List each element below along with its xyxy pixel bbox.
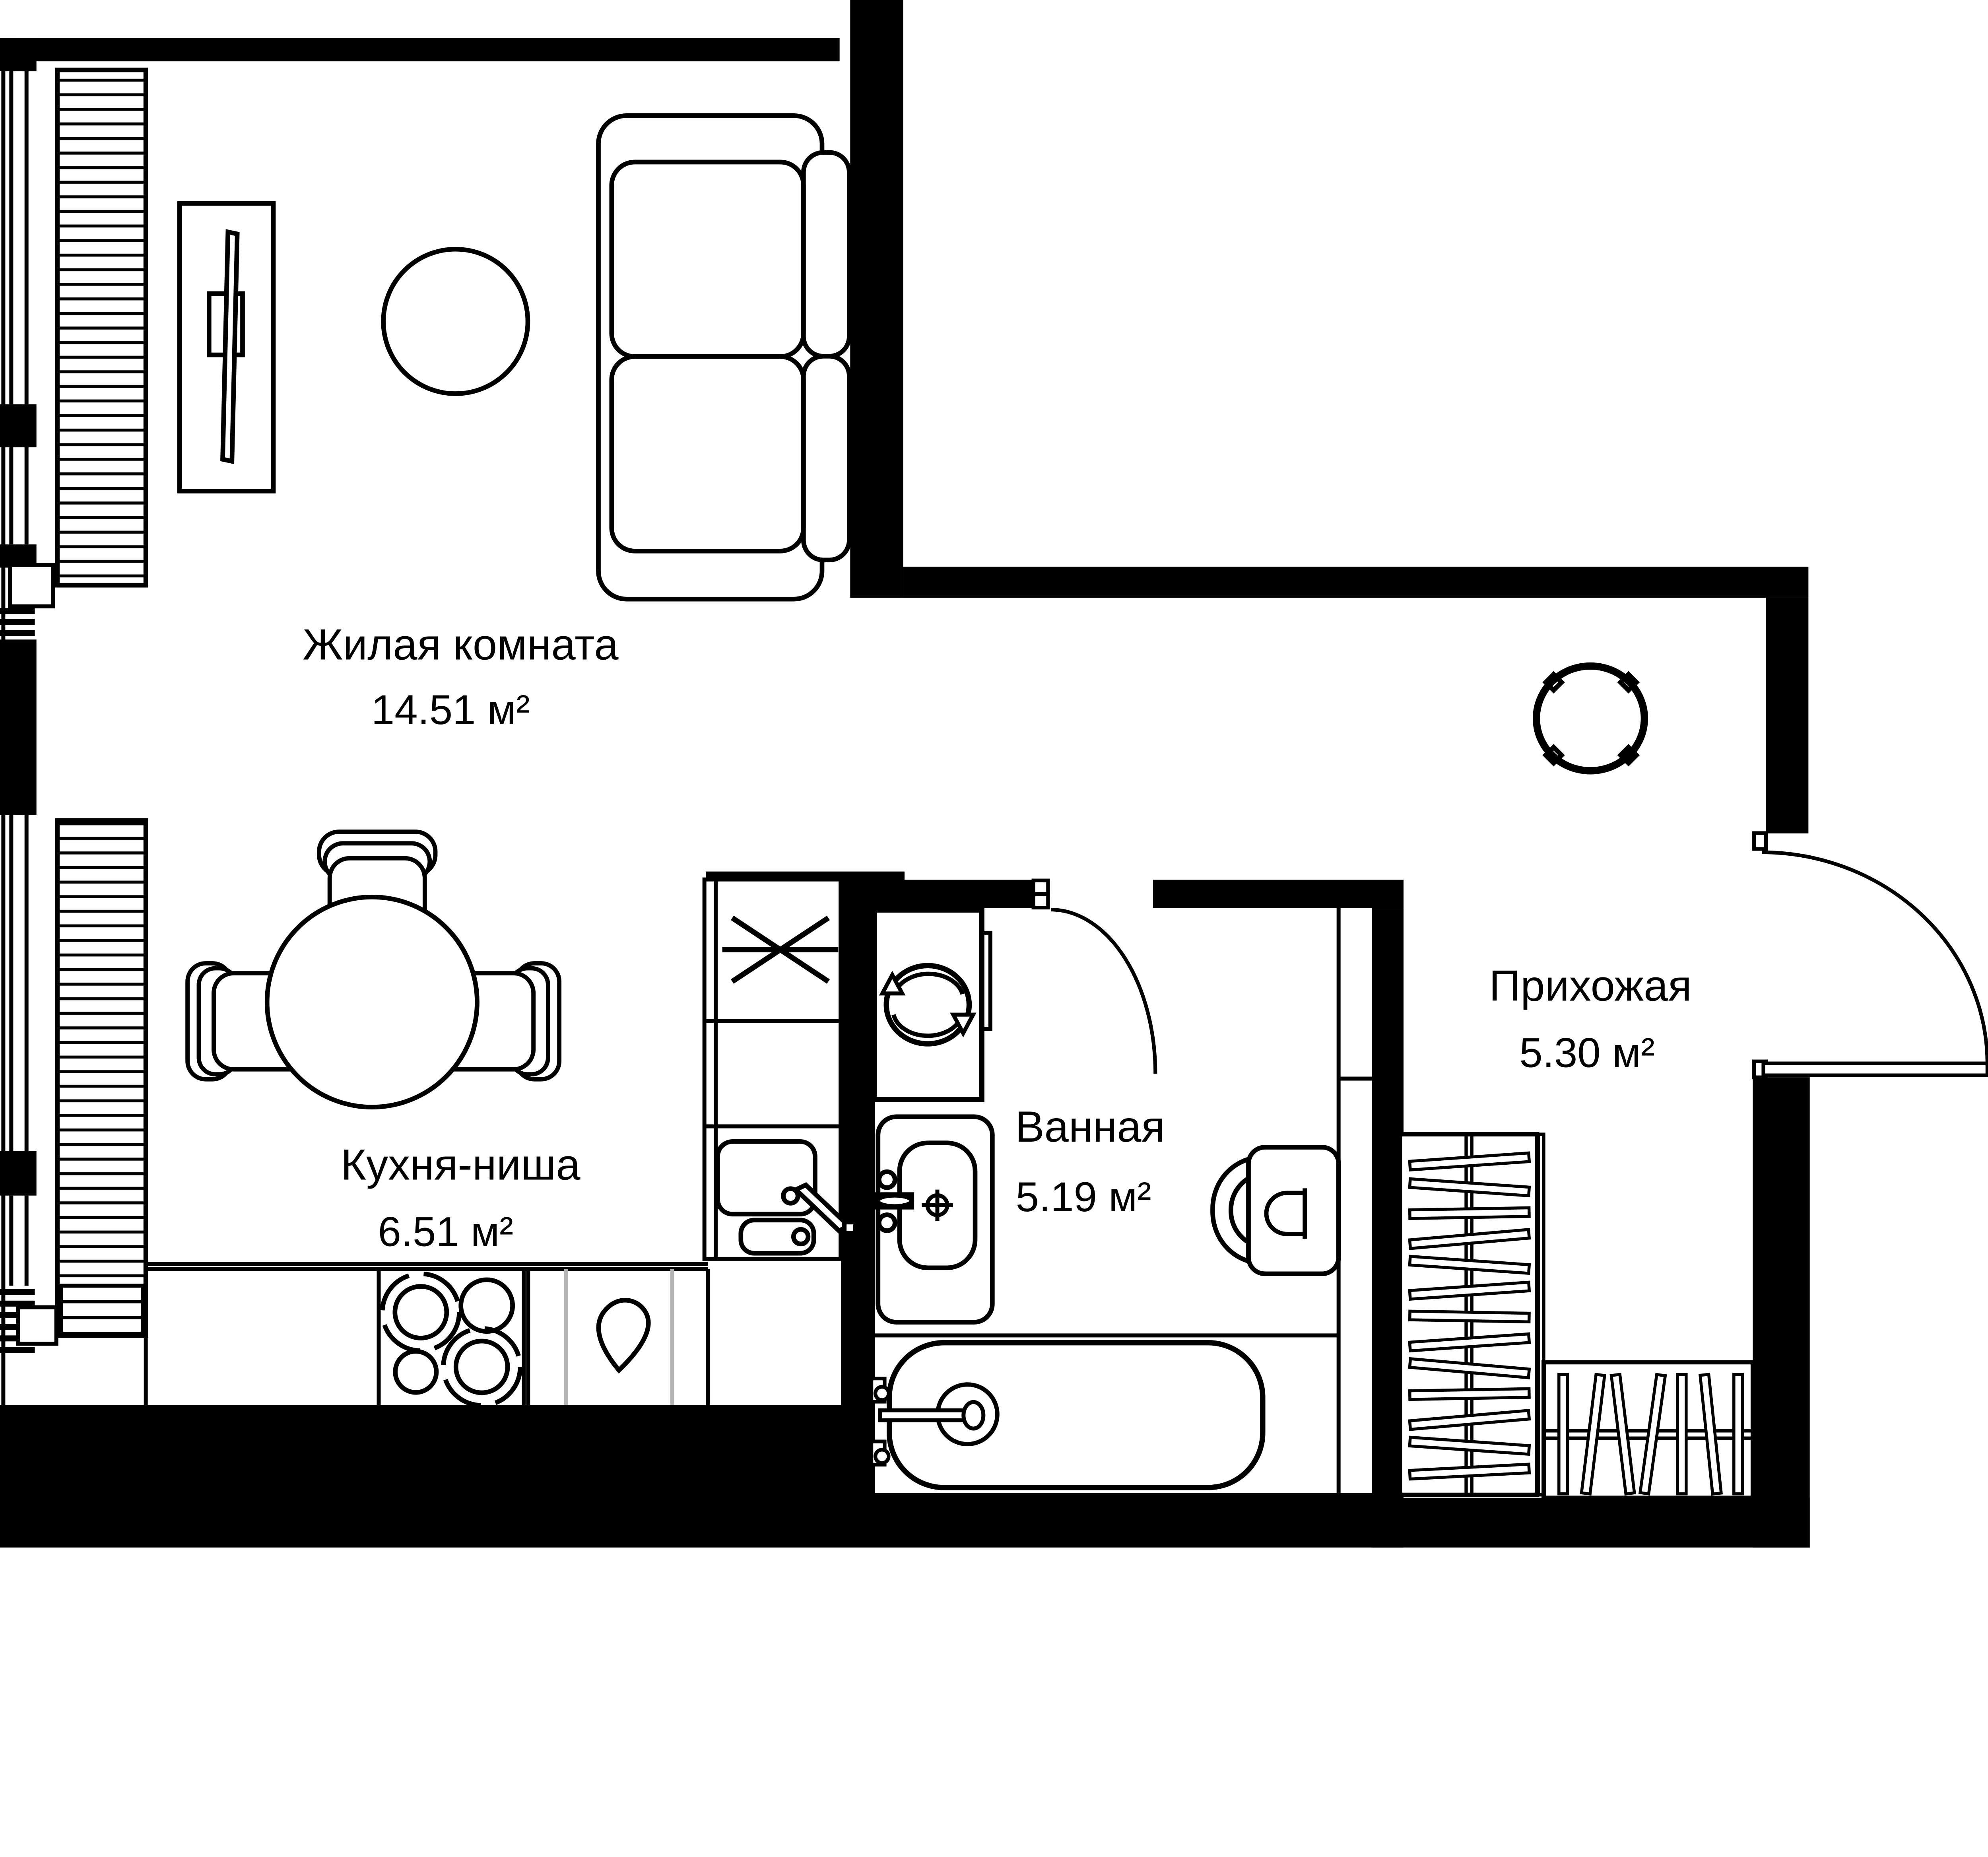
dining-table (267, 897, 477, 1107)
wall-top-right-band (850, 0, 903, 598)
counter-end-grille (61, 1286, 143, 1334)
wall-top (18, 38, 840, 61)
wall-hallway-top (903, 567, 1809, 598)
kitchen-area: 6.51 м² (378, 1208, 514, 1255)
entrance-door-leaf (1763, 1063, 1987, 1075)
bathroom-label: Ванная (1015, 1102, 1165, 1151)
wall-bath-top-right (1153, 880, 1404, 908)
hallway-label: Прихожая (1489, 962, 1692, 1010)
bathroom-area: 5.19 м² (1016, 1174, 1151, 1220)
shoe-rack (1543, 1362, 1753, 1498)
tv-screen (223, 232, 237, 461)
sofa (598, 116, 849, 599)
radiator-grille-living (57, 70, 146, 585)
wall-box-upper (10, 565, 53, 606)
wall-right-upper (1766, 598, 1809, 833)
radiator-grille-kitchen (57, 820, 146, 1336)
bathtub (872, 1343, 1263, 1488)
wall-box-lower (18, 1307, 56, 1344)
kitchen-label: Кухня-ниша (341, 1140, 580, 1189)
kitchen-tall-units (705, 880, 856, 1259)
wall-bottom-bath (875, 1493, 1404, 1548)
living-room-area: 14.51 м² (371, 687, 530, 733)
floor-plan: Жилая комната 14.51 м² Кухня-ниша 6.51 м… (0, 0, 1988, 1548)
hallway-area: 5.30 м² (1519, 1030, 1655, 1076)
wall-bath-top-left (862, 880, 1033, 908)
bathroom-sink (876, 1117, 992, 1322)
wall-vent-upper (0, 608, 35, 636)
wall-bottom-left (0, 1405, 875, 1547)
washing-machine (874, 910, 990, 1099)
wardrobe (1400, 1134, 1544, 1495)
plan-background (0, 0, 1988, 1548)
wall-right-lower (1753, 1077, 1809, 1547)
tv-stand (180, 204, 274, 491)
wall-bottom-right (1404, 1498, 1810, 1548)
toilet (1213, 1147, 1339, 1274)
living-room-label: Жилая комната (303, 620, 619, 669)
ottoman (383, 249, 528, 394)
